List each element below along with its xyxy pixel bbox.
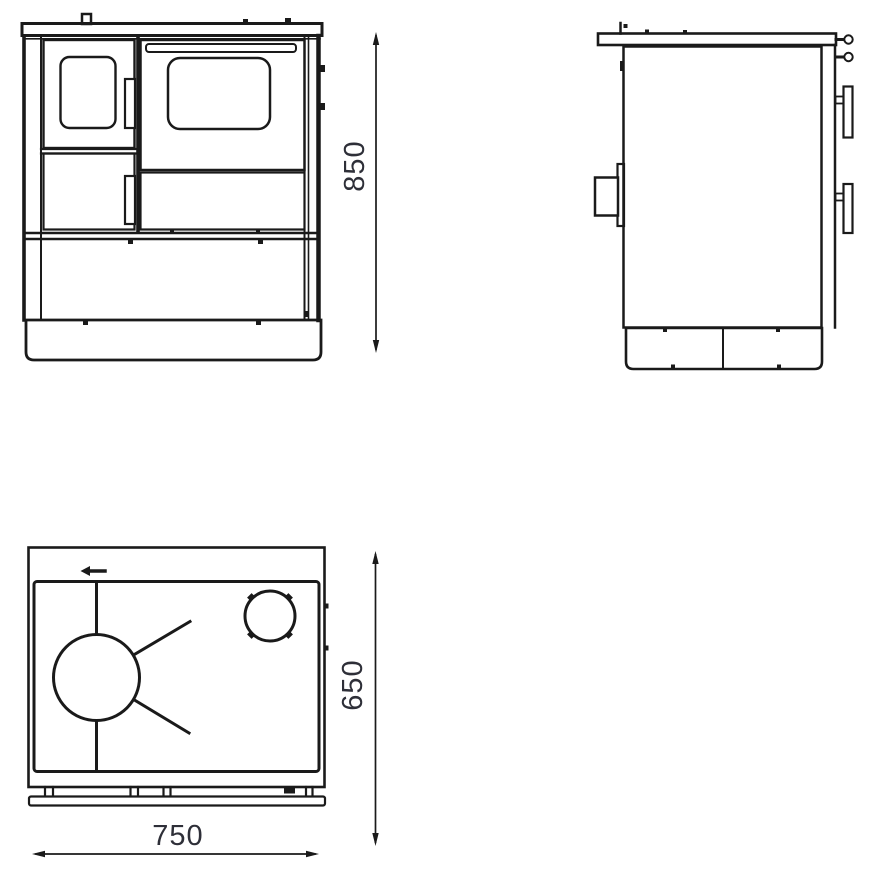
ash-door-handle (125, 176, 135, 224)
handle-stem (836, 97, 844, 104)
arrow-right-icon (306, 851, 319, 857)
flue-collar (245, 591, 295, 641)
flue-outlet-stub (595, 178, 618, 216)
tick-mark (777, 365, 781, 369)
tick-mark (620, 61, 624, 71)
tick-mark (671, 365, 675, 369)
hinge-nub (320, 65, 325, 72)
tick-mark (128, 240, 133, 244)
front-plinth (26, 320, 321, 360)
side-view (595, 23, 853, 369)
stove-technical-drawing: 850 650 750 (0, 0, 870, 870)
depth-dimension-line (372, 551, 378, 846)
side-lower-handle (844, 184, 853, 233)
arrow-up-icon (373, 32, 379, 45)
tick-mark (645, 30, 649, 34)
side-upper-handle (844, 87, 853, 138)
side-body (624, 47, 822, 328)
firebox-door-handle (125, 79, 135, 128)
hinge-nub (325, 604, 329, 609)
tick-mark (258, 240, 263, 244)
side-top-plate (598, 34, 836, 46)
top-front-strip (29, 797, 325, 806)
top-view (29, 548, 379, 858)
front-top-plate (22, 24, 322, 36)
oven-door-handle-bar (146, 44, 296, 52)
arrow-left-icon (32, 851, 45, 857)
height-dimension-label: 850 (340, 126, 370, 206)
oven-door-window (168, 58, 270, 129)
tick-mark (256, 321, 261, 325)
tick-mark (683, 30, 687, 34)
drawing-linework (0, 0, 870, 870)
firebox-door-window (61, 57, 116, 128)
arrow-up-icon (372, 551, 378, 564)
tick-mark (663, 329, 667, 332)
tick-mark (83, 321, 88, 325)
width-dimension-label: 750 (138, 820, 218, 852)
hinge-nub (325, 646, 329, 651)
handle-stem (836, 194, 844, 201)
tick-mark (256, 229, 260, 232)
side-knob (844, 53, 852, 61)
ash-door (44, 154, 135, 230)
height-dimension-line (373, 32, 379, 353)
tick-mark (624, 24, 628, 28)
front-view (22, 14, 379, 360)
side-knob (844, 35, 852, 43)
feet-ticks (45, 787, 313, 796)
tick-mark (776, 329, 780, 332)
hotplate-ring (54, 635, 140, 721)
arrow-down-icon (373, 340, 379, 353)
arrow-down-icon (372, 833, 378, 846)
depth-dimension-label: 650 (338, 645, 368, 725)
tick-mark (304, 311, 309, 317)
oven-door (141, 40, 305, 170)
tick-mark (284, 788, 295, 794)
flue-direction-arrow-icon (81, 566, 106, 576)
oven-drawer (141, 173, 305, 230)
tick-mark (170, 229, 174, 232)
hinge-nub (320, 103, 325, 110)
